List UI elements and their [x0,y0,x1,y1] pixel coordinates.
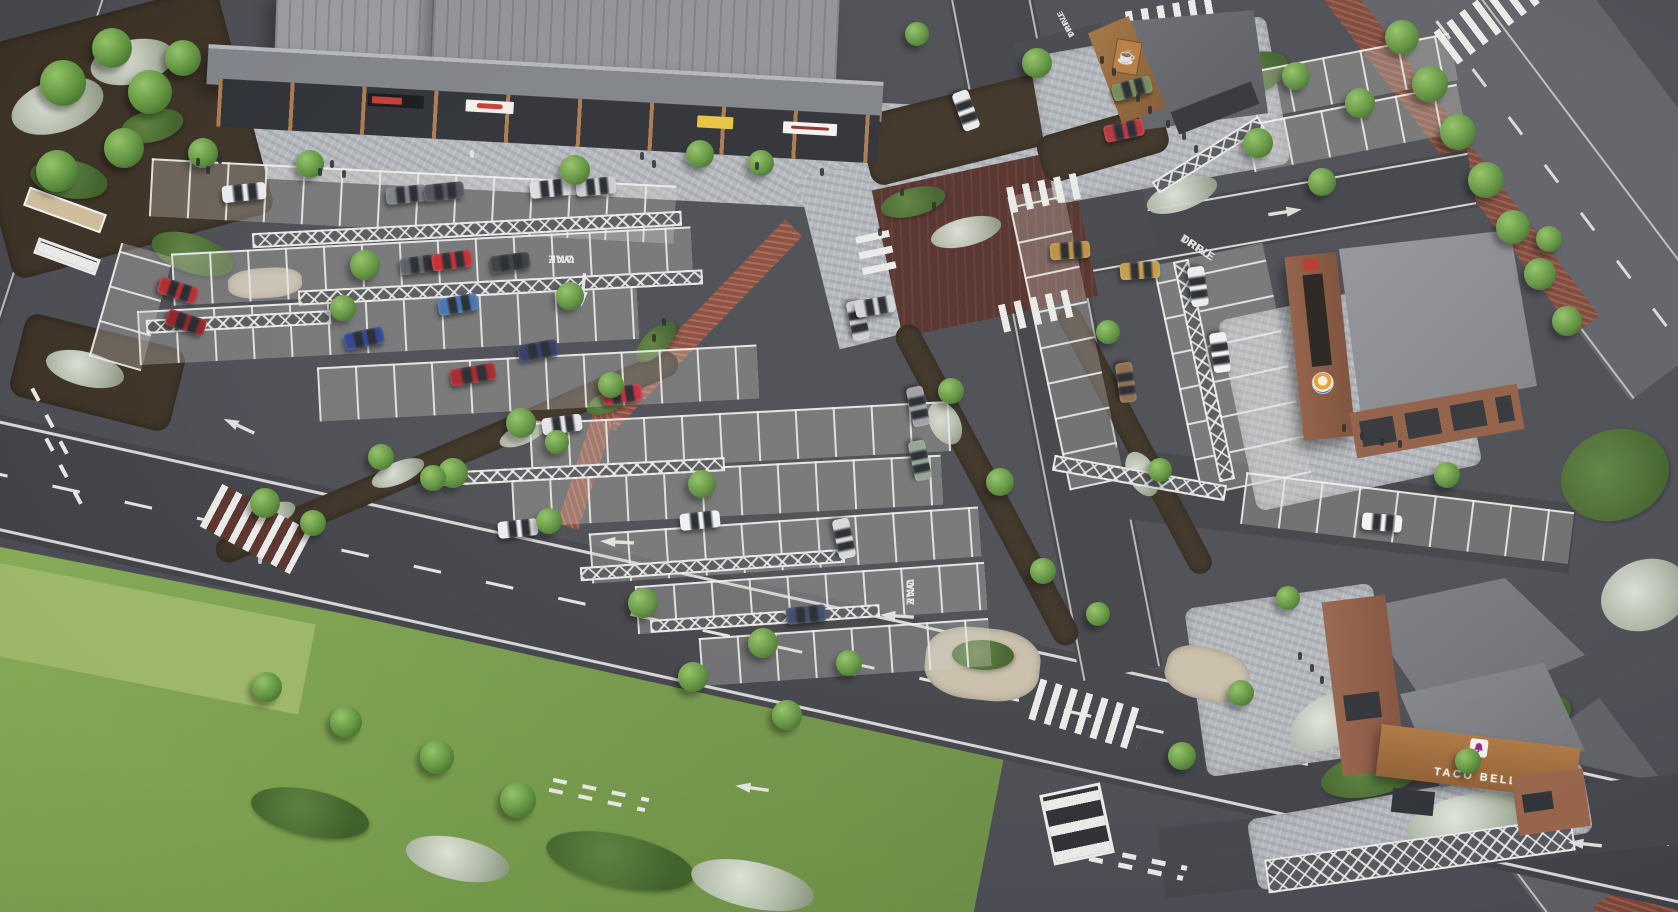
pedestrian [218,156,222,164]
pedestrian [1298,652,1302,660]
pedestrian [1398,440,1402,448]
pedestrian [1124,82,1128,90]
pedestrian [1360,432,1364,440]
pedestrian [652,334,656,342]
pedestrian [1112,68,1116,76]
pedestrian [318,168,322,176]
pedestrian [640,152,644,160]
pedestrian [1148,106,1152,114]
pedestrian [206,166,210,174]
pedestrian [1182,132,1186,140]
pedestrian [900,188,904,196]
pedestrian [1136,94,1140,102]
pedestrian [1166,120,1170,128]
pedestrian [755,162,759,170]
pedestrian [470,150,474,158]
pedestrian [1342,424,1346,432]
site-plan-canvas: ONEWAY ONEWAY DRIVETHRU DRIVETHRU [0,0,1678,912]
pedestrian [330,160,334,168]
pedestrian [820,168,824,176]
pedestrian [1194,145,1198,153]
pedestrian [932,202,936,210]
pedestrians-layer [0,0,1678,912]
pedestrian [1100,56,1104,64]
pedestrian [342,170,346,178]
pedestrian [1320,676,1324,684]
pedestrian [1310,664,1314,672]
pedestrian [196,158,200,166]
pedestrian [652,160,656,168]
pedestrian [258,556,262,564]
pedestrian [662,318,666,326]
pedestrian [878,228,882,236]
pedestrian [1380,438,1384,446]
